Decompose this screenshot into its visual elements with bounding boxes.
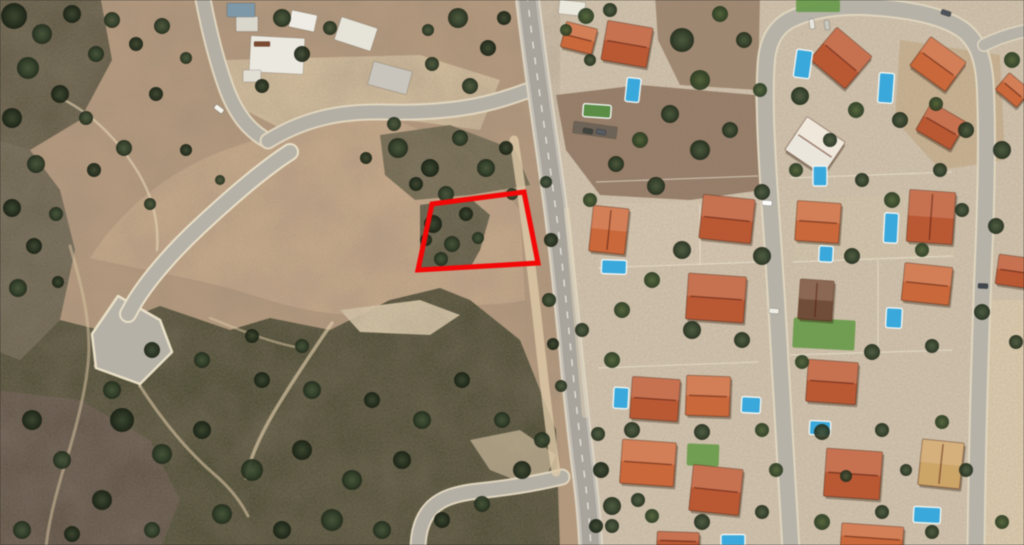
roof-highlight xyxy=(807,359,858,383)
house xyxy=(600,20,655,70)
tree xyxy=(360,152,372,164)
tree xyxy=(292,440,312,460)
car xyxy=(824,20,830,31)
tree xyxy=(591,427,605,441)
tree xyxy=(64,526,80,542)
tree xyxy=(795,355,809,369)
tree xyxy=(823,133,837,147)
house xyxy=(906,189,958,247)
house xyxy=(657,531,702,545)
tree xyxy=(1,3,27,29)
tree xyxy=(848,102,864,118)
tree xyxy=(373,521,391,539)
car xyxy=(762,200,772,206)
house xyxy=(917,439,966,492)
lawn xyxy=(796,0,840,12)
tree xyxy=(603,497,621,515)
tree xyxy=(540,176,552,188)
tree xyxy=(295,339,309,353)
house xyxy=(794,201,843,247)
house xyxy=(629,376,682,424)
car xyxy=(978,283,988,289)
swimming-pool xyxy=(885,308,902,329)
tree xyxy=(555,380,567,392)
tree xyxy=(17,57,39,79)
tree xyxy=(661,105,679,123)
tree xyxy=(614,302,630,318)
tree xyxy=(624,422,640,438)
tree xyxy=(694,424,710,440)
satellite-map xyxy=(0,0,1024,545)
swimming-pool xyxy=(883,213,899,244)
house xyxy=(797,279,836,324)
tree xyxy=(593,462,609,478)
tree xyxy=(129,37,143,51)
tree xyxy=(734,332,750,348)
tree xyxy=(584,54,596,66)
tree xyxy=(144,522,160,538)
tree xyxy=(144,342,160,358)
tree xyxy=(387,117,401,131)
tree xyxy=(955,203,969,217)
tree xyxy=(53,451,71,469)
tree xyxy=(434,252,448,266)
tree xyxy=(421,159,439,177)
tree xyxy=(814,514,830,530)
swimming-pool xyxy=(721,535,745,545)
house xyxy=(588,205,631,257)
swimming-pool xyxy=(583,104,612,119)
tree xyxy=(884,192,900,208)
tree xyxy=(755,505,769,519)
tree xyxy=(814,424,830,440)
swimming-pool xyxy=(819,246,834,263)
tree xyxy=(754,184,770,200)
tree xyxy=(864,344,880,360)
tree xyxy=(342,470,362,490)
swimming-pool xyxy=(613,387,629,409)
tree xyxy=(915,243,929,257)
tree xyxy=(448,8,468,28)
building xyxy=(227,3,255,17)
tree xyxy=(534,432,550,448)
tree xyxy=(154,18,170,34)
house xyxy=(805,359,860,407)
roof-highlight xyxy=(796,201,841,224)
tree xyxy=(690,70,710,90)
house xyxy=(619,439,678,489)
tree xyxy=(929,97,943,111)
house xyxy=(995,254,1024,291)
tree xyxy=(149,87,163,101)
tree xyxy=(255,79,269,93)
tree xyxy=(892,112,908,128)
swimming-pool xyxy=(813,166,827,186)
tree xyxy=(3,199,21,217)
tree xyxy=(144,198,156,210)
tree xyxy=(26,238,42,254)
tree xyxy=(875,423,889,437)
tree xyxy=(722,122,738,138)
house xyxy=(840,523,906,545)
tree xyxy=(578,8,594,24)
tree xyxy=(925,339,939,353)
tree xyxy=(497,11,511,25)
house xyxy=(823,448,884,502)
tree xyxy=(690,140,710,160)
tree xyxy=(753,83,767,97)
tree xyxy=(1009,335,1023,349)
tree xyxy=(79,111,93,125)
tree xyxy=(51,85,69,103)
tree xyxy=(303,381,321,399)
lawn xyxy=(687,443,720,466)
tree xyxy=(434,512,450,528)
tree xyxy=(974,304,990,320)
tree xyxy=(925,525,939,539)
tree xyxy=(452,130,468,146)
tree xyxy=(694,514,710,530)
tree xyxy=(547,338,559,350)
tree xyxy=(840,470,852,482)
tree xyxy=(513,461,531,479)
tree xyxy=(273,9,291,27)
tree xyxy=(900,464,912,476)
tree xyxy=(988,218,1004,234)
building xyxy=(236,17,258,32)
tree xyxy=(544,233,558,247)
swimming-pool xyxy=(913,506,941,523)
tree xyxy=(755,423,769,437)
roof-highlight xyxy=(686,375,731,397)
tree xyxy=(425,57,439,71)
tree xyxy=(631,493,645,507)
tree xyxy=(180,144,192,156)
tree xyxy=(993,141,1011,159)
tree xyxy=(480,40,496,56)
tree xyxy=(194,352,210,368)
tree xyxy=(753,247,771,265)
tree xyxy=(454,372,470,388)
tree xyxy=(388,138,408,158)
tree xyxy=(103,381,121,399)
tree xyxy=(104,12,120,28)
tree xyxy=(542,293,556,307)
tree xyxy=(958,122,974,138)
tree xyxy=(323,21,337,35)
tree xyxy=(589,519,603,533)
tree xyxy=(472,232,484,244)
tree xyxy=(116,140,132,156)
tree xyxy=(875,505,889,519)
tree xyxy=(13,521,31,539)
tree xyxy=(9,279,27,297)
tree xyxy=(632,132,648,148)
roof-highlight xyxy=(631,376,680,400)
tree xyxy=(769,463,783,477)
tree xyxy=(245,329,259,343)
tree xyxy=(608,156,624,172)
tree xyxy=(193,421,211,439)
roof-highlight xyxy=(825,448,883,476)
swimming-pool xyxy=(625,77,641,102)
tree xyxy=(494,412,510,428)
tree xyxy=(444,236,460,252)
house xyxy=(685,375,732,419)
tree xyxy=(241,459,263,481)
tree xyxy=(88,46,104,62)
tree xyxy=(499,141,513,155)
tree xyxy=(560,24,572,36)
tree xyxy=(393,451,411,469)
car xyxy=(809,19,815,30)
tree xyxy=(87,163,101,177)
tree xyxy=(673,241,691,259)
tree xyxy=(474,496,490,512)
tree xyxy=(1004,52,1020,68)
house xyxy=(901,263,955,309)
tree xyxy=(789,163,803,177)
tree xyxy=(22,410,42,430)
tree xyxy=(935,415,949,429)
tree xyxy=(273,521,291,539)
swimming-pool xyxy=(601,260,626,275)
tree xyxy=(644,272,660,288)
tree xyxy=(49,207,63,221)
tree xyxy=(364,392,380,408)
tree xyxy=(321,509,343,531)
tree xyxy=(294,46,310,62)
tree xyxy=(736,32,752,48)
house xyxy=(685,273,748,326)
tree xyxy=(413,411,431,429)
tree xyxy=(462,78,478,94)
tree xyxy=(933,163,947,177)
tree xyxy=(180,52,192,64)
tree xyxy=(215,175,225,185)
tree xyxy=(152,444,172,464)
car xyxy=(769,308,779,314)
swimming-pool xyxy=(793,49,813,79)
tree xyxy=(459,207,473,221)
building xyxy=(254,42,270,47)
tree xyxy=(2,108,22,128)
tree xyxy=(52,276,64,288)
tree xyxy=(604,352,620,368)
tree xyxy=(409,177,423,191)
tree xyxy=(645,509,659,523)
house xyxy=(699,194,758,246)
tree xyxy=(959,463,973,477)
tree xyxy=(110,408,134,432)
tree xyxy=(855,173,869,187)
tree xyxy=(422,24,434,36)
tree xyxy=(995,515,1009,529)
map-svg xyxy=(0,0,1024,545)
tree xyxy=(683,321,701,339)
swimming-pool xyxy=(741,397,761,414)
tree xyxy=(212,504,232,524)
tree xyxy=(27,155,45,173)
tree xyxy=(583,193,597,207)
tree xyxy=(477,159,495,177)
tree xyxy=(92,490,112,510)
house xyxy=(688,465,745,519)
tree xyxy=(254,372,270,388)
tree xyxy=(712,6,728,22)
tree xyxy=(32,24,52,44)
tree xyxy=(575,323,589,337)
tree xyxy=(63,5,81,23)
tree xyxy=(605,519,619,533)
tree xyxy=(791,87,809,105)
tree xyxy=(670,28,694,52)
tree xyxy=(844,248,860,264)
tree xyxy=(647,177,665,195)
tree xyxy=(603,3,617,17)
swimming-pool xyxy=(877,73,894,104)
